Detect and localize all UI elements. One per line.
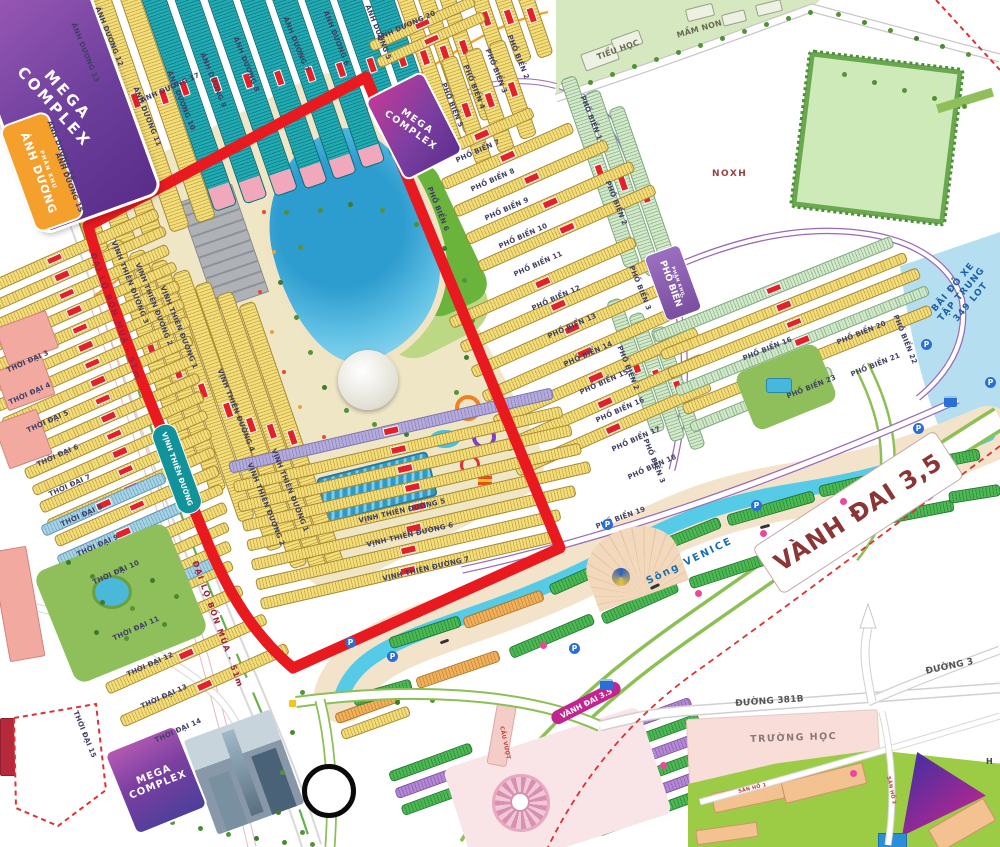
bus-stop-icon xyxy=(944,396,957,407)
mega-complex-label: MEGA COMPLEX xyxy=(382,99,445,152)
parking-icon: P xyxy=(751,500,762,511)
location-circle-marker[interactable] xyxy=(302,764,356,818)
parking-icon: P xyxy=(569,643,580,654)
parking-icon: P xyxy=(387,651,398,662)
parking-icon: P xyxy=(345,637,356,648)
vanh-dai-dashed-line xyxy=(548,446,1000,847)
bus-stop-icon xyxy=(600,679,613,690)
area-label-h: H xyxy=(986,758,993,766)
poi-markers xyxy=(695,590,702,597)
parking-icon: P xyxy=(913,423,924,434)
red-highlight-outline xyxy=(88,77,560,668)
parking-icon: P xyxy=(921,339,932,350)
parking-icon: P xyxy=(985,377,996,388)
yellow-marker xyxy=(289,700,296,707)
dashed-future-zone xyxy=(14,704,106,826)
area-label-noxh: NOXH xyxy=(712,170,747,179)
mega-complex-label: MEGA COMPLEX xyxy=(124,758,189,801)
masterplan-map: MEGA COMPLEX MEGA COMPLEX MEGA COMPLEX P… xyxy=(0,0,1000,847)
road-network-south xyxy=(296,604,1000,847)
boundary-dashed-line xyxy=(936,0,1000,70)
parking-icon: P xyxy=(602,519,613,530)
